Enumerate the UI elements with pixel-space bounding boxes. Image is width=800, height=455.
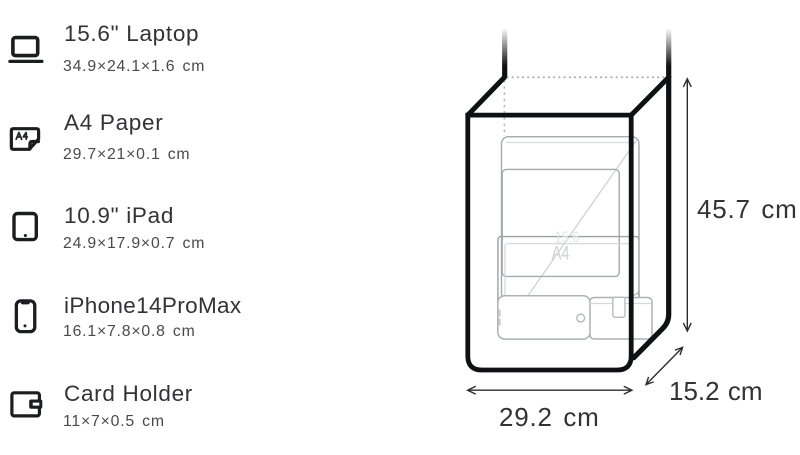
svg-text:A4: A4	[552, 242, 570, 264]
